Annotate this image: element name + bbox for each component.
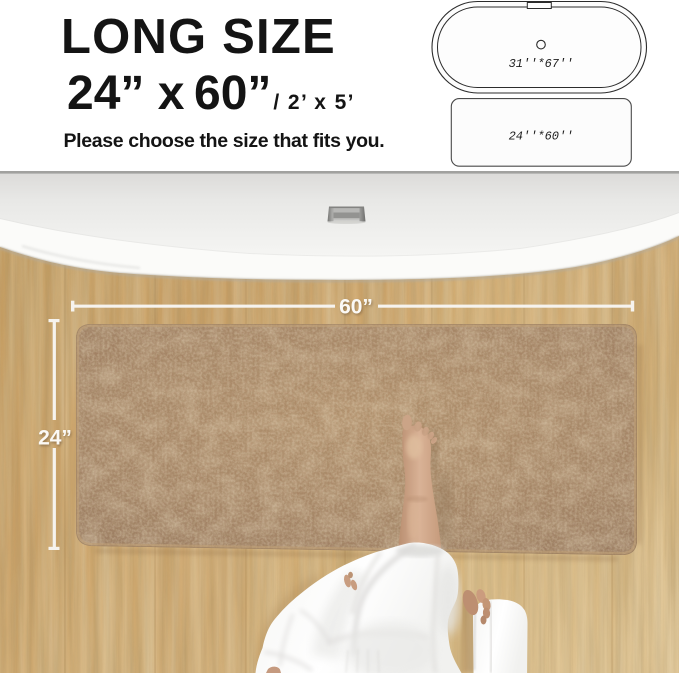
svg-text:24”: 24” bbox=[38, 427, 72, 450]
svg-text:60”: 60” bbox=[339, 296, 373, 319]
svg-text:24''*60'': 24''*60'' bbox=[509, 130, 574, 144]
svg-text:31''*67'': 31''*67'' bbox=[509, 57, 574, 71]
